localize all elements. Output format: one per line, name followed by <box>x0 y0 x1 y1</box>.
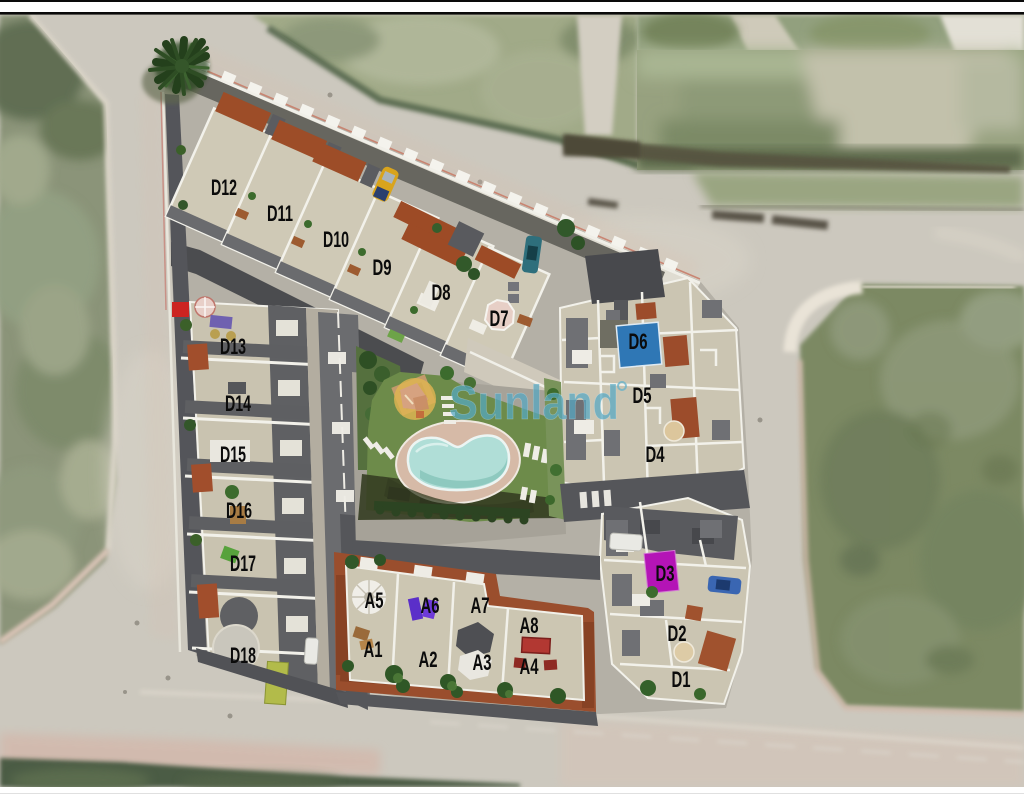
svg-text:D8: D8 <box>432 280 451 305</box>
svg-text:A4: A4 <box>520 654 540 679</box>
svg-text:A2: A2 <box>419 647 438 672</box>
svg-text:D7: D7 <box>490 306 509 331</box>
svg-text:A6: A6 <box>421 593 440 618</box>
svg-text:D17: D17 <box>230 551 256 576</box>
svg-text:D11: D11 <box>267 201 293 226</box>
svg-text:D6: D6 <box>629 329 648 354</box>
svg-text:D15: D15 <box>220 442 246 467</box>
svg-text:D1: D1 <box>672 667 691 692</box>
svg-text:D5: D5 <box>633 383 652 408</box>
svg-text:A8: A8 <box>520 613 539 638</box>
svg-text:D16: D16 <box>226 498 252 523</box>
svg-text:D12: D12 <box>211 175 237 200</box>
svg-text:A5: A5 <box>365 588 384 613</box>
svg-text:D18: D18 <box>230 643 256 668</box>
svg-text:Sunland: Sunland <box>449 377 619 430</box>
svg-text:A3: A3 <box>473 650 492 675</box>
svg-text:D2: D2 <box>668 621 687 646</box>
svg-text:A1: A1 <box>364 637 383 662</box>
svg-text:D9: D9 <box>373 255 392 280</box>
svg-text:D10: D10 <box>323 227 349 252</box>
svg-text:D14: D14 <box>225 391 251 416</box>
svg-text:D3: D3 <box>656 561 675 586</box>
svg-text:D13: D13 <box>220 334 246 359</box>
svg-text:D4: D4 <box>646 442 666 467</box>
svg-text:A7: A7 <box>471 593 490 618</box>
